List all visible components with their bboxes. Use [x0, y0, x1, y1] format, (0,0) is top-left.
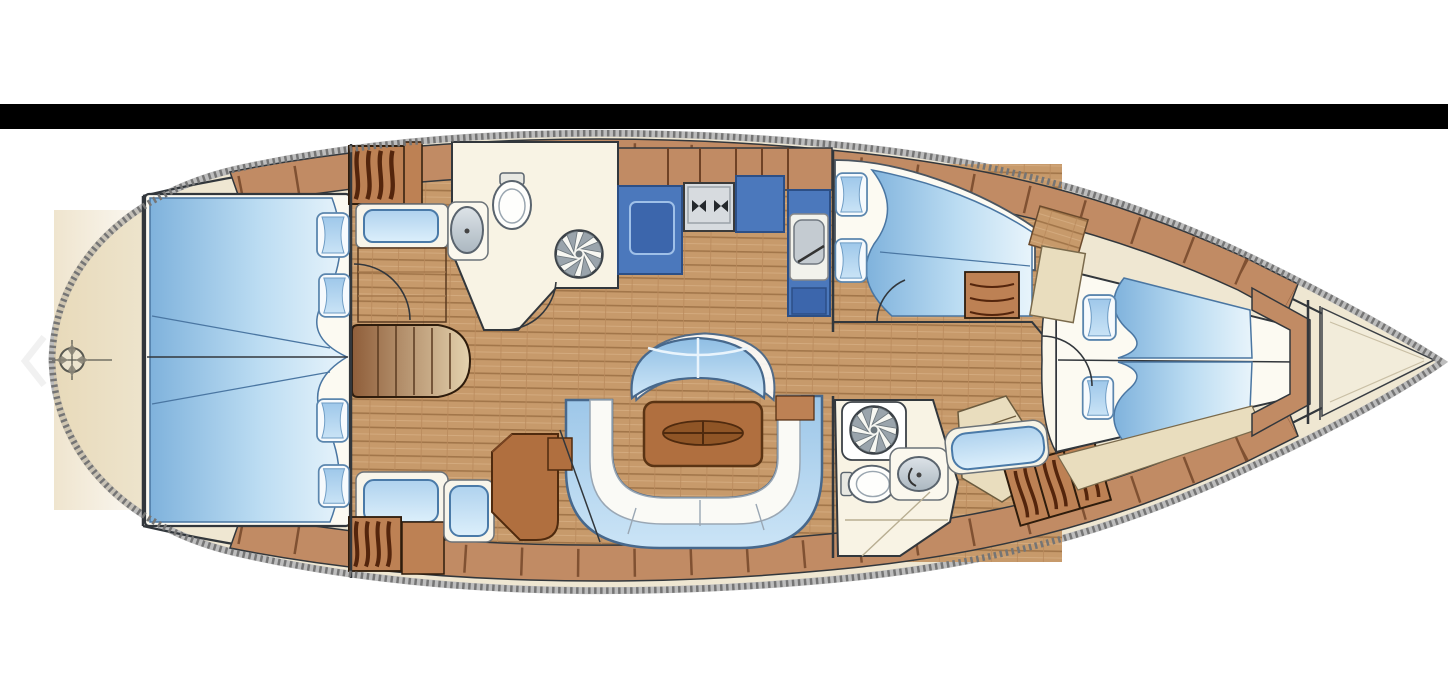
corridor-bench-cushion: [364, 480, 438, 522]
companionway-steps: [352, 325, 470, 397]
chevron-left-icon[interactable]: [25, 337, 44, 385]
galley-counter: [736, 176, 784, 232]
wardrobe-louver-locker: [349, 517, 401, 571]
stove-icon: [684, 183, 734, 231]
settee-end-locker: [776, 396, 814, 420]
aft-owner-cabin: [145, 194, 350, 526]
pillow-icon: [836, 173, 867, 216]
nav-seat-cushion: [450, 486, 488, 536]
pillow-icon: [317, 213, 349, 257]
pillow-icon: [1083, 377, 1114, 419]
chest-of-drawers: [965, 272, 1019, 318]
pillow-icon: [317, 399, 348, 442]
shower-icon: [849, 405, 898, 454]
letterbox-bar: [0, 104, 1448, 129]
screenshot-stage: [0, 0, 1448, 700]
shower-icon: [554, 229, 603, 278]
passage-bench: [944, 419, 1050, 475]
pillow-icon: [835, 239, 866, 282]
vanity-seat-cushion: [364, 210, 438, 242]
previous-image-button[interactable]: [25, 337, 44, 385]
dresser: [358, 248, 446, 322]
pillow-icon: [319, 274, 350, 317]
pillow-icon: [319, 465, 350, 507]
galley-sink: [630, 202, 674, 254]
pillow-icon: [1083, 295, 1116, 340]
cabinet: [404, 142, 422, 204]
galley-sink-unit: [788, 190, 830, 316]
salon-table: [644, 402, 762, 466]
wardrobe-louver-locker: [349, 146, 405, 204]
cabinet: [402, 522, 444, 574]
